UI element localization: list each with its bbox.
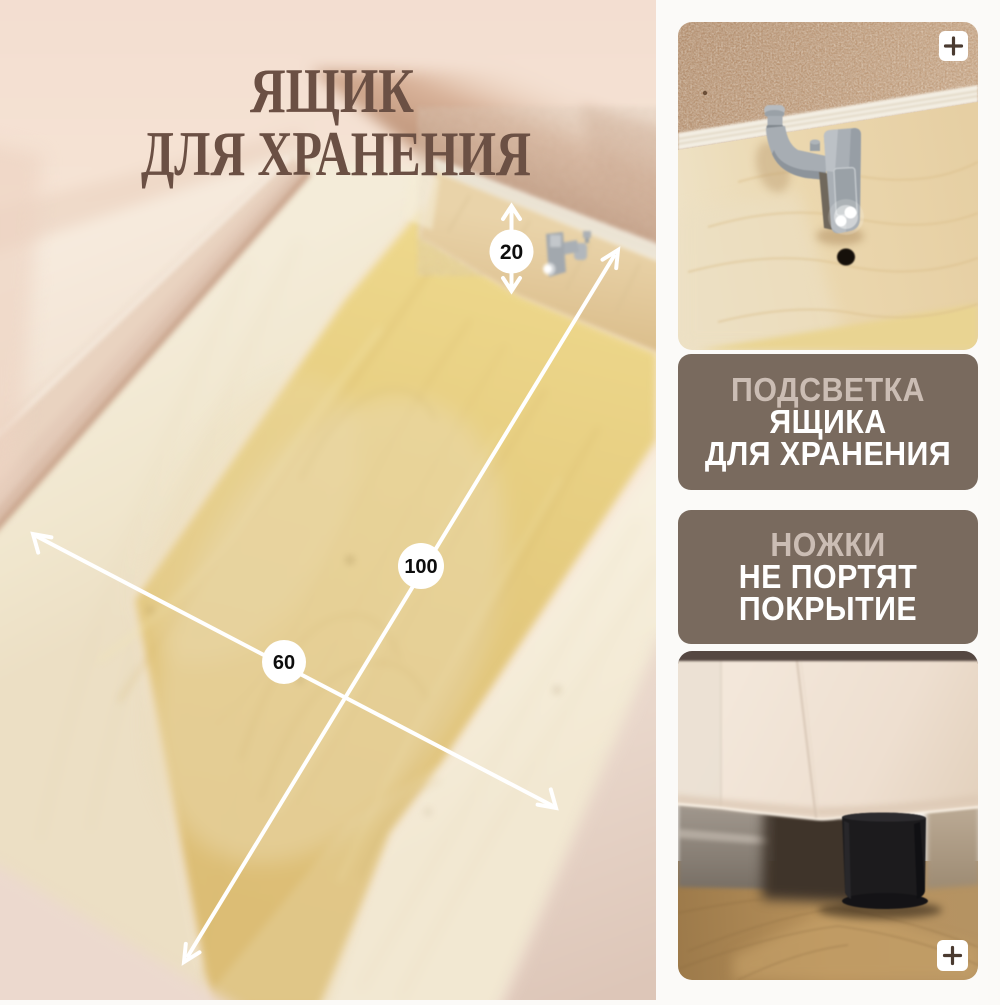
svg-text:100: 100: [404, 556, 437, 578]
svg-text:20: 20: [500, 241, 523, 264]
svg-text:ЯЩИК: ЯЩИК: [250, 55, 414, 126]
svg-text:ДЛЯ ХРАНЕНИЯ: ДЛЯ ХРАНЕНИЯ: [141, 118, 531, 189]
svg-text:60: 60: [273, 652, 295, 674]
